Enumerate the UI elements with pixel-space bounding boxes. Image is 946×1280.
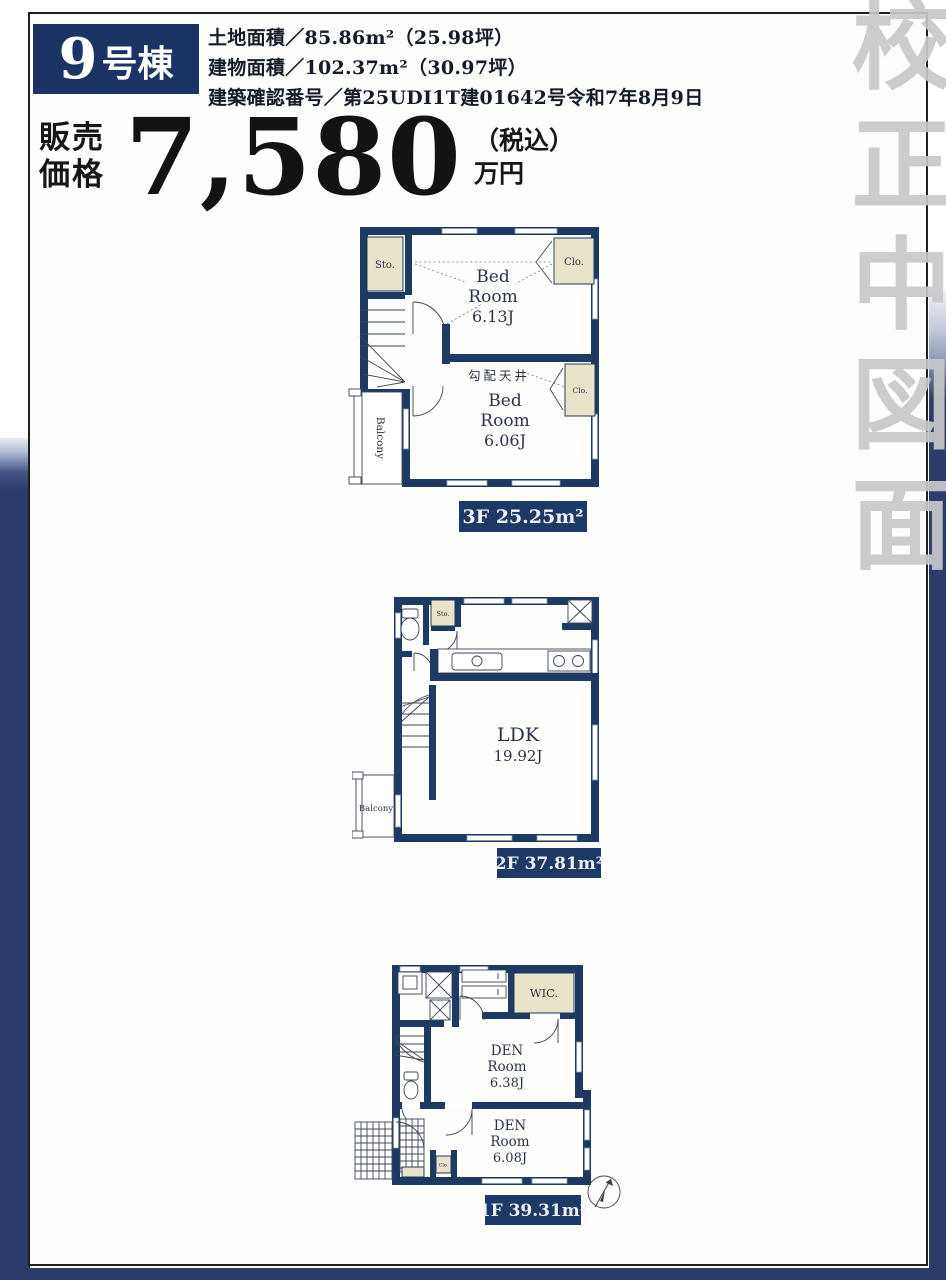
unit-suffix: 号棟 (101, 36, 173, 82)
svg-text:Room: Room (480, 411, 529, 431)
f2-walls (394, 597, 599, 842)
f2-sink-icon (452, 653, 502, 670)
svg-text:LDK: LDK (497, 724, 540, 746)
f1-den2-label: DEN Room 6.08J (490, 1118, 529, 1166)
f3-balcony: Balcony (349, 389, 402, 484)
detail-building-area: 建物面積／102.37m²（30.97坪） (208, 53, 704, 83)
f1-den1-label: DEN Room 6.38J (487, 1043, 526, 1091)
f2-area-badge: 2F 37.81m² (495, 848, 603, 878)
f1-area-label: 1F 39.31m² (479, 1201, 587, 1221)
floorplan-1f: WIC. Clo. (352, 960, 692, 1245)
price-amount: 7,580 (125, 108, 462, 206)
svg-text:DEN: DEN (491, 1043, 524, 1059)
f3-storage-label: Sto. (375, 260, 395, 271)
background-right-band (929, 290, 946, 1280)
f2-balcony-label: Balcony (359, 804, 393, 814)
floorplan-2f: Sto. LDK 19 (352, 585, 632, 890)
compass-icon (588, 1176, 620, 1208)
f1-wic-box: WIC. (514, 973, 574, 1043)
f2-kitchen-icon (430, 649, 599, 681)
unit-badge: 9 号棟 (33, 24, 199, 94)
price-unit: 万円 (474, 157, 574, 190)
f2-stairs-icon (400, 695, 429, 747)
f3-sloped-ceiling-label: 勾配天井 (468, 368, 530, 383)
f3-closet-top: Clo. (536, 238, 594, 284)
price-section: 販売 価格 7,580 （税込） 万円 (39, 108, 574, 206)
background-bottom-band (0, 1268, 946, 1280)
flyer-page: 9 号棟 土地面積／85.86m²（25.98坪） 建物面積／102.37m²（… (28, 12, 928, 1266)
f3-doors (413, 302, 445, 416)
price-suffix: （税込） 万円 (474, 124, 574, 190)
f3-closet-top-label: Clo. (564, 257, 584, 268)
detail-land-area: 土地面積／85.86m²（25.98坪） (208, 23, 704, 53)
f3-area-label: 3F 25.25m² (462, 506, 583, 528)
svg-text:6.06J: 6.06J (484, 431, 526, 450)
f1-genkan-step (402, 1167, 424, 1177)
f3-bedroom1-label: Bed Room 6.13J (468, 267, 517, 326)
svg-text:6.13J: 6.13J (472, 307, 514, 326)
f2-refrigerator-space-icon (568, 600, 592, 623)
f1-washroom-icons (398, 972, 452, 1020)
f1-toilet-icon (402, 1072, 420, 1125)
price-tax-note: （税込） (474, 124, 574, 157)
f1-closet-box: Clo. (436, 1156, 451, 1173)
f2-storage-label: Sto. (437, 610, 450, 618)
svg-text:Room: Room (490, 1134, 529, 1150)
floorplan-3f: Sto. Clo. (347, 224, 607, 536)
svg-text:Room: Room (487, 1059, 526, 1075)
f3-closet-mid: Clo. (550, 364, 595, 416)
f2-area-label: 2F 37.81m² (495, 854, 603, 874)
svg-text:Room: Room (468, 287, 517, 307)
f1-area-badge: 1F 39.31m² (479, 1195, 587, 1225)
svg-text:Bed: Bed (476, 267, 510, 287)
svg-text:DEN: DEN (494, 1118, 527, 1134)
f1-closet-label: Clo. (439, 1163, 449, 1169)
price-label-top: 販売 (39, 120, 105, 157)
f3-storage-box: Sto. (367, 237, 403, 291)
f3-closet-mid-label: Clo. (573, 386, 588, 395)
flyer-canvas: 9 号棟 土地面積／85.86m²（25.98坪） 建物面積／102.37m²（… (0, 0, 946, 1280)
background-left-band (0, 438, 30, 1280)
f2-ldk-label: LDK 19.92J (494, 724, 543, 765)
f3-bedroom2-label: Bed Room 6.06J (480, 391, 529, 450)
f1-porch-tiles (355, 1122, 392, 1179)
f3-balcony-label: Balcony (374, 417, 386, 459)
f1-den2-door (446, 1109, 472, 1135)
f2-storage-box: Sto. (431, 600, 457, 653)
f1-entry (355, 1119, 424, 1179)
svg-text:Bed: Bed (488, 391, 522, 411)
svg-text:19.92J: 19.92J (494, 747, 543, 765)
price-label-bottom: 価格 (39, 157, 105, 194)
price-label: 販売 価格 (39, 120, 105, 194)
f2-balcony: Balcony (352, 772, 394, 838)
svg-text:6.38J: 6.38J (490, 1076, 524, 1091)
unit-number: 9 (59, 31, 98, 87)
f1-wic-label: WIC. (530, 986, 558, 1000)
f3-area-badge: 3F 25.25m² (459, 501, 587, 532)
f1-vanity-icon (398, 972, 422, 994)
svg-text:6.08J: 6.08J (493, 1151, 527, 1166)
